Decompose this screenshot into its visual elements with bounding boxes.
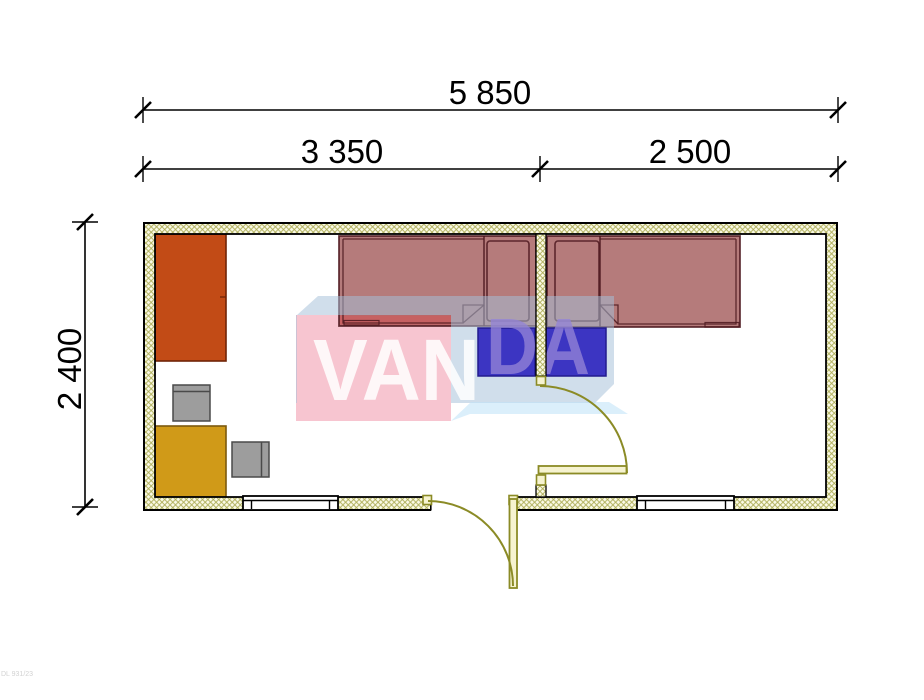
svg-text:DL 931/23: DL 931/23 [1, 671, 33, 678]
svg-text:VAN: VAN [313, 322, 480, 419]
svg-text:2 400: 2 400 [51, 328, 88, 411]
svg-text:3 350: 3 350 [301, 133, 384, 170]
svg-text:5 850: 5 850 [449, 74, 532, 111]
svg-text:2 500: 2 500 [649, 133, 732, 170]
